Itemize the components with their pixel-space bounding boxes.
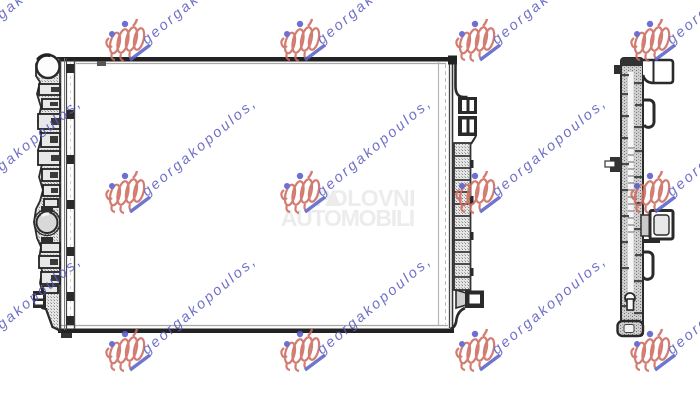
svg-text:AUTOMOBILI: AUTOMOBILI [281,205,414,231]
